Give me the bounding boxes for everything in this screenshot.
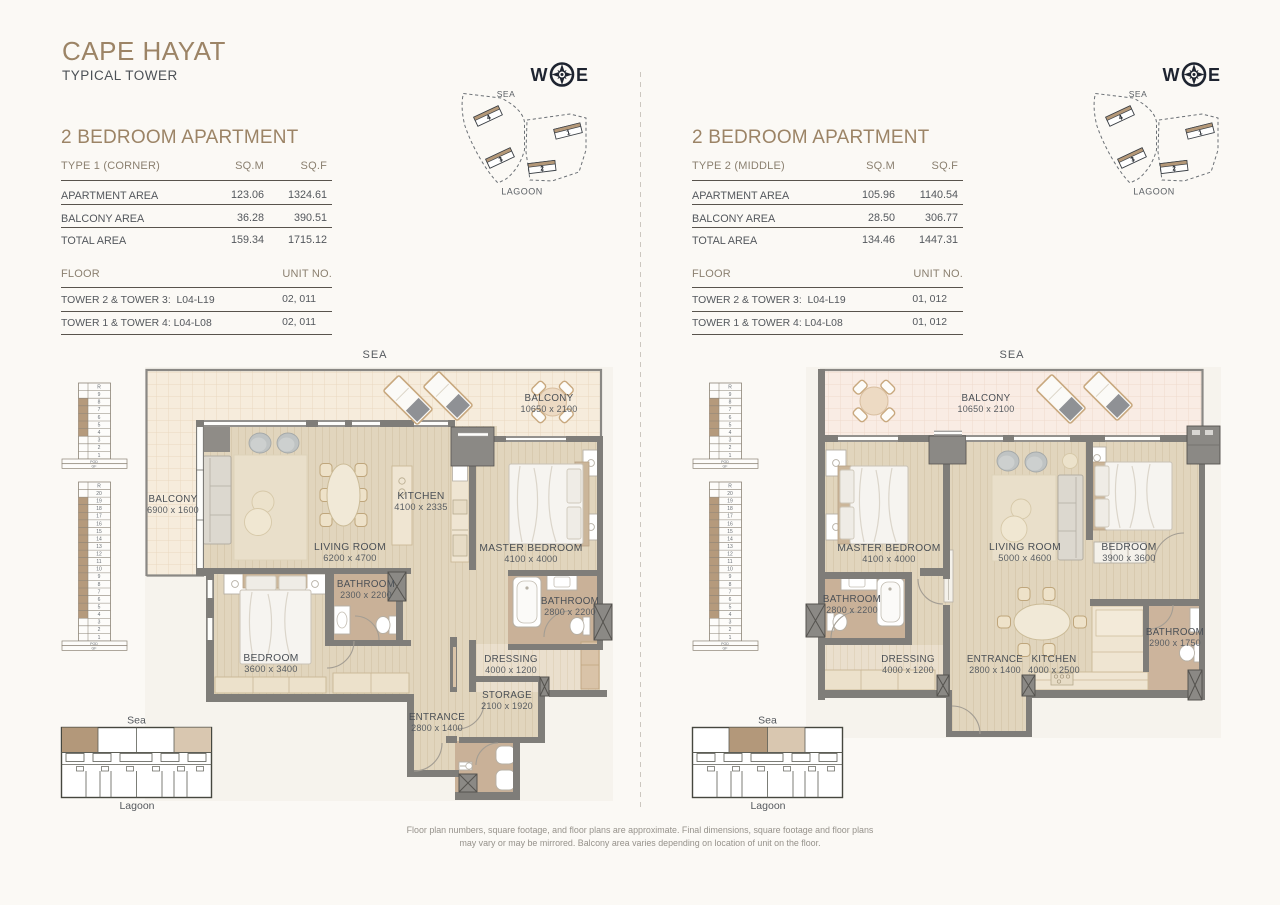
svg-text:3: 3	[729, 620, 732, 626]
svg-text:10: 10	[727, 567, 733, 573]
svg-text:2: 2	[729, 445, 732, 451]
svg-text:MASTER BEDROOM: MASTER BEDROOM	[479, 543, 582, 554]
svg-text:7: 7	[98, 589, 101, 595]
svg-text:9: 9	[729, 574, 732, 580]
svg-text:12: 12	[727, 552, 733, 558]
svg-text:BATHROOM: BATHROOM	[337, 579, 395, 590]
svg-text:BATHROOM: BATHROOM	[541, 596, 599, 607]
svg-text:3: 3	[98, 620, 101, 626]
svg-text:6: 6	[729, 597, 732, 603]
svg-text:POD: POD	[721, 460, 729, 464]
svg-text:7: 7	[98, 407, 101, 413]
svg-text:7: 7	[729, 589, 732, 595]
svg-text:13: 13	[727, 544, 733, 550]
svg-text:4000 x 2500: 4000 x 2500	[1028, 665, 1080, 675]
svg-text:LIVING ROOM: LIVING ROOM	[989, 542, 1061, 553]
svg-text:5: 5	[98, 422, 101, 428]
svg-text:POD: POD	[90, 460, 98, 464]
svg-text:9: 9	[98, 392, 101, 398]
svg-text:GF: GF	[723, 465, 729, 469]
svg-text:MASTER BEDROOM: MASTER BEDROOM	[837, 543, 940, 554]
svg-text:2: 2	[98, 627, 101, 633]
svg-text:2800 x 1400: 2800 x 1400	[969, 665, 1021, 675]
svg-text:LAGOON: LAGOON	[1133, 187, 1175, 197]
svg-text:2: 2	[98, 445, 101, 451]
svg-text:20: 20	[96, 491, 102, 497]
svg-text:16: 16	[96, 521, 102, 527]
svg-text:19: 19	[96, 499, 102, 505]
svg-text:GF: GF	[92, 647, 98, 651]
svg-text:R: R	[728, 483, 732, 489]
svg-text:8: 8	[98, 400, 101, 406]
svg-text:R: R	[97, 483, 101, 489]
svg-text:18: 18	[96, 506, 102, 512]
svg-text:13: 13	[96, 544, 102, 550]
svg-text:3: 3	[98, 438, 101, 444]
svg-text:10650 x 2100: 10650 x 2100	[958, 404, 1015, 414]
svg-text:GF: GF	[92, 465, 98, 469]
svg-text:4100 x 2335: 4100 x 2335	[394, 502, 447, 512]
svg-text:19: 19	[727, 499, 733, 505]
svg-text:BEDROOM: BEDROOM	[1101, 542, 1156, 553]
svg-text:4100 x 4000: 4100 x 4000	[504, 554, 557, 564]
svg-text:15: 15	[96, 529, 102, 535]
svg-text:5: 5	[729, 422, 732, 428]
svg-text:8: 8	[729, 582, 732, 588]
svg-text:1: 1	[98, 635, 101, 641]
svg-text:10: 10	[96, 567, 102, 573]
svg-text:KITCHEN: KITCHEN	[397, 491, 444, 502]
svg-text:2900 x 1750: 2900 x 1750	[1149, 638, 1201, 648]
svg-text:20: 20	[727, 491, 733, 497]
svg-text:2800 x 2200: 2800 x 2200	[544, 607, 596, 617]
svg-text:R: R	[728, 384, 732, 390]
svg-text:7: 7	[729, 407, 732, 413]
svg-text:14: 14	[727, 536, 733, 542]
svg-text:2: 2	[729, 627, 732, 633]
svg-text:17: 17	[727, 514, 733, 520]
svg-text:BALCONY: BALCONY	[525, 393, 574, 404]
svg-text:5: 5	[98, 605, 101, 611]
svg-text:BATHROOM: BATHROOM	[1146, 627, 1204, 638]
svg-text:Lagoon: Lagoon	[750, 800, 785, 812]
svg-text:9: 9	[98, 574, 101, 580]
svg-text:11: 11	[727, 559, 732, 565]
svg-text:6: 6	[729, 415, 732, 421]
svg-text:14: 14	[96, 536, 102, 542]
svg-text:1: 1	[729, 453, 732, 459]
svg-text:3: 3	[729, 438, 732, 444]
svg-text:R: R	[97, 384, 101, 390]
svg-text:2300 x 2200: 2300 x 2200	[340, 590, 392, 600]
svg-text:6: 6	[98, 597, 101, 603]
svg-text:2100 x 1920: 2100 x 1920	[481, 701, 533, 711]
svg-text:5000 x 4600: 5000 x 4600	[998, 553, 1051, 563]
svg-text:POD: POD	[90, 642, 98, 646]
svg-text:11: 11	[96, 559, 101, 565]
svg-text:4: 4	[729, 612, 732, 618]
svg-text:ENTRANCE: ENTRANCE	[409, 712, 465, 723]
svg-text:DRESSING: DRESSING	[881, 654, 935, 665]
svg-text:LIVING ROOM: LIVING ROOM	[314, 542, 386, 553]
svg-text:BALCONY: BALCONY	[149, 494, 198, 505]
svg-text:GF: GF	[723, 647, 729, 651]
svg-text:1: 1	[729, 635, 732, 641]
svg-text:18: 18	[727, 506, 733, 512]
svg-text:KITCHEN: KITCHEN	[1031, 654, 1076, 665]
svg-text:4: 4	[98, 430, 101, 436]
svg-text:16: 16	[727, 521, 733, 527]
svg-text:4: 4	[98, 612, 101, 618]
svg-text:8: 8	[98, 582, 101, 588]
svg-text:LAGOON: LAGOON	[501, 187, 543, 197]
svg-text:4: 4	[729, 430, 732, 436]
svg-text:BALCONY: BALCONY	[962, 393, 1011, 404]
svg-text:4000 x 1200: 4000 x 1200	[882, 665, 934, 675]
svg-text:6200 x 4700: 6200 x 4700	[323, 553, 376, 563]
svg-text:4100 x 4000: 4100 x 4000	[862, 554, 915, 564]
svg-text:6: 6	[98, 415, 101, 421]
svg-text:POD: POD	[721, 642, 729, 646]
svg-text:DRESSING: DRESSING	[484, 654, 538, 665]
svg-text:12: 12	[96, 552, 102, 558]
svg-text:17: 17	[96, 514, 102, 520]
svg-text:Sea: Sea	[758, 715, 777, 727]
svg-text:ENTRANCE: ENTRANCE	[967, 654, 1023, 665]
svg-text:3600 x 3400: 3600 x 3400	[244, 664, 297, 674]
svg-text:STORAGE: STORAGE	[482, 690, 532, 701]
svg-text:2800 x 1400: 2800 x 1400	[411, 723, 463, 733]
svg-text:4000 x 1200: 4000 x 1200	[485, 665, 537, 675]
svg-text:BEDROOM: BEDROOM	[243, 653, 298, 664]
svg-text:9: 9	[729, 392, 732, 398]
svg-text:8: 8	[729, 400, 732, 406]
svg-text:BATHROOM: BATHROOM	[823, 594, 881, 605]
svg-text:3900 x 3600: 3900 x 3600	[1102, 553, 1155, 563]
svg-text:1: 1	[98, 453, 101, 459]
svg-text:5: 5	[729, 605, 732, 611]
svg-text:2800 x 2200: 2800 x 2200	[826, 605, 878, 615]
svg-text:6900 x 1600: 6900 x 1600	[147, 505, 199, 515]
svg-text:15: 15	[727, 529, 733, 535]
svg-text:10650 x 2100: 10650 x 2100	[521, 404, 578, 414]
